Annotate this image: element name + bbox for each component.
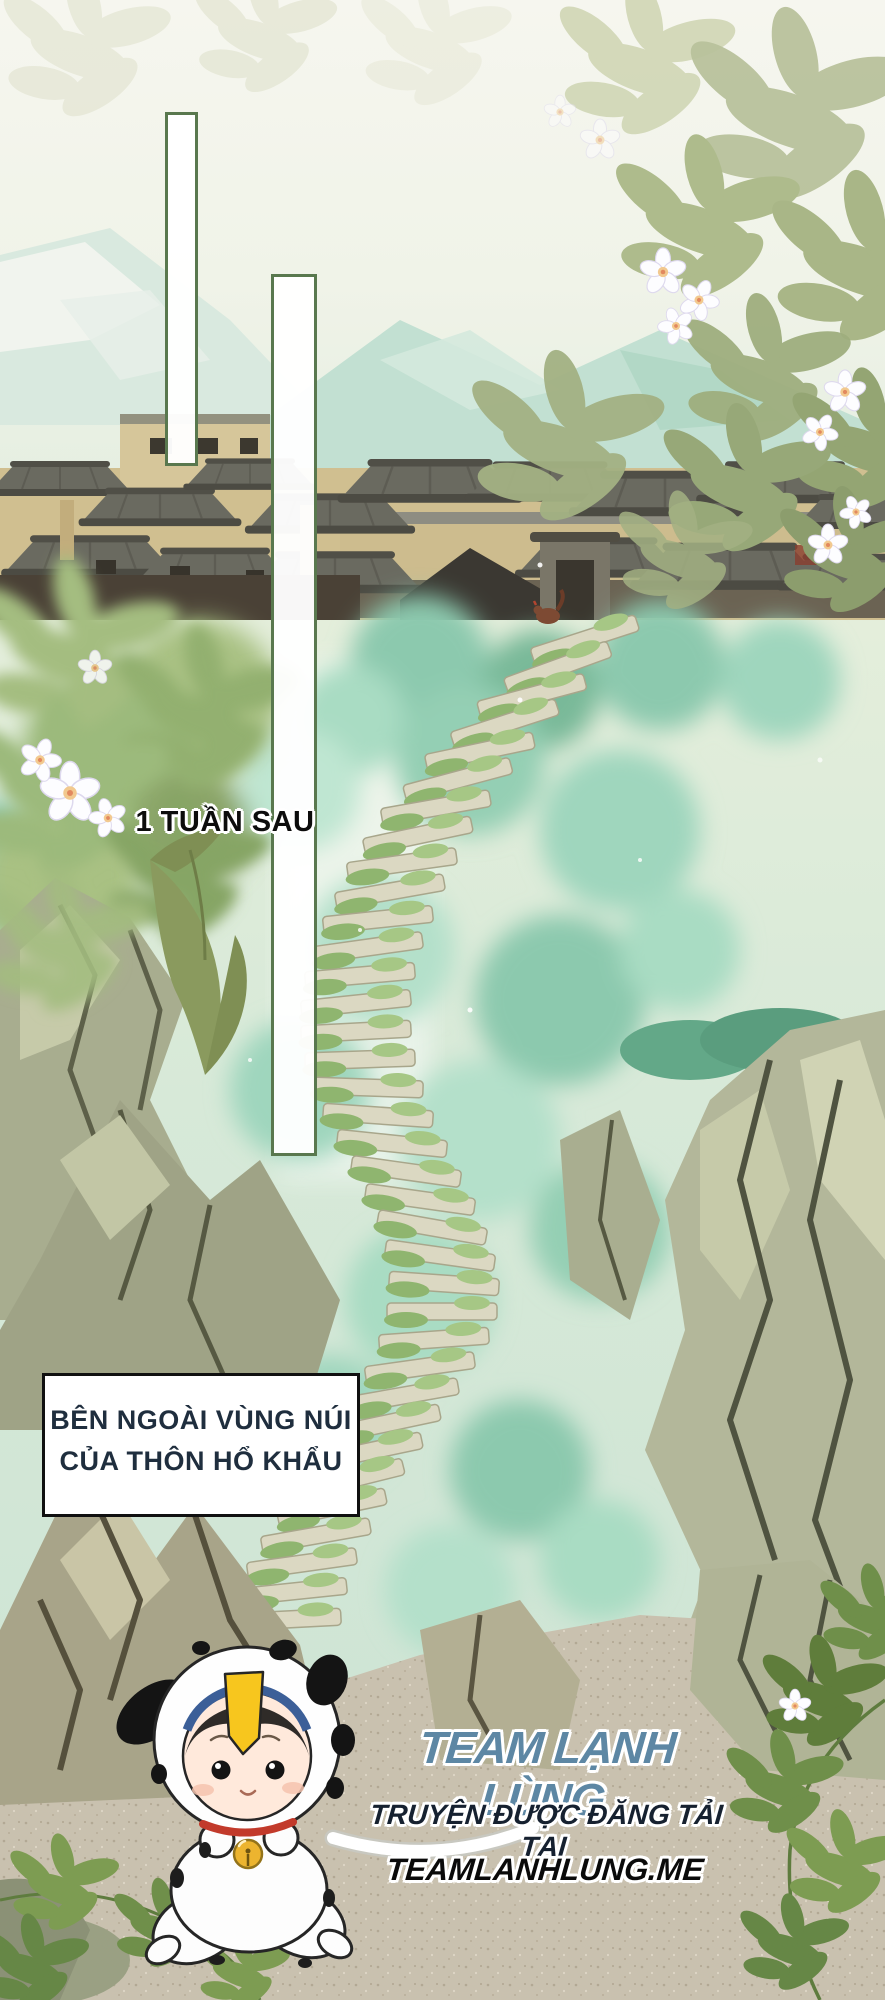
caption-box: BÊN NGOÀI VÙNG NÚI CỦA THÔN HỔ KHẨU [42, 1373, 360, 1517]
sfx-translation-text: 1 TUẦN SAU [110, 806, 340, 839]
credit-website: TEAMLANHLUNG.ME [348, 1852, 741, 1888]
panel-bar-long [271, 274, 317, 1156]
comic-page: 一周后 1 TUẦN SAU BÊN NGOÀI VÙNG [0, 0, 885, 2000]
caption-line-2: CỦA THÔN HỔ KHẨU [45, 1441, 357, 1482]
caption-line-1: BÊN NGOÀI VÙNG NÚI [45, 1400, 357, 1441]
sfx-original-glyphs [150, 505, 270, 795]
panel-bar-short [165, 112, 198, 466]
